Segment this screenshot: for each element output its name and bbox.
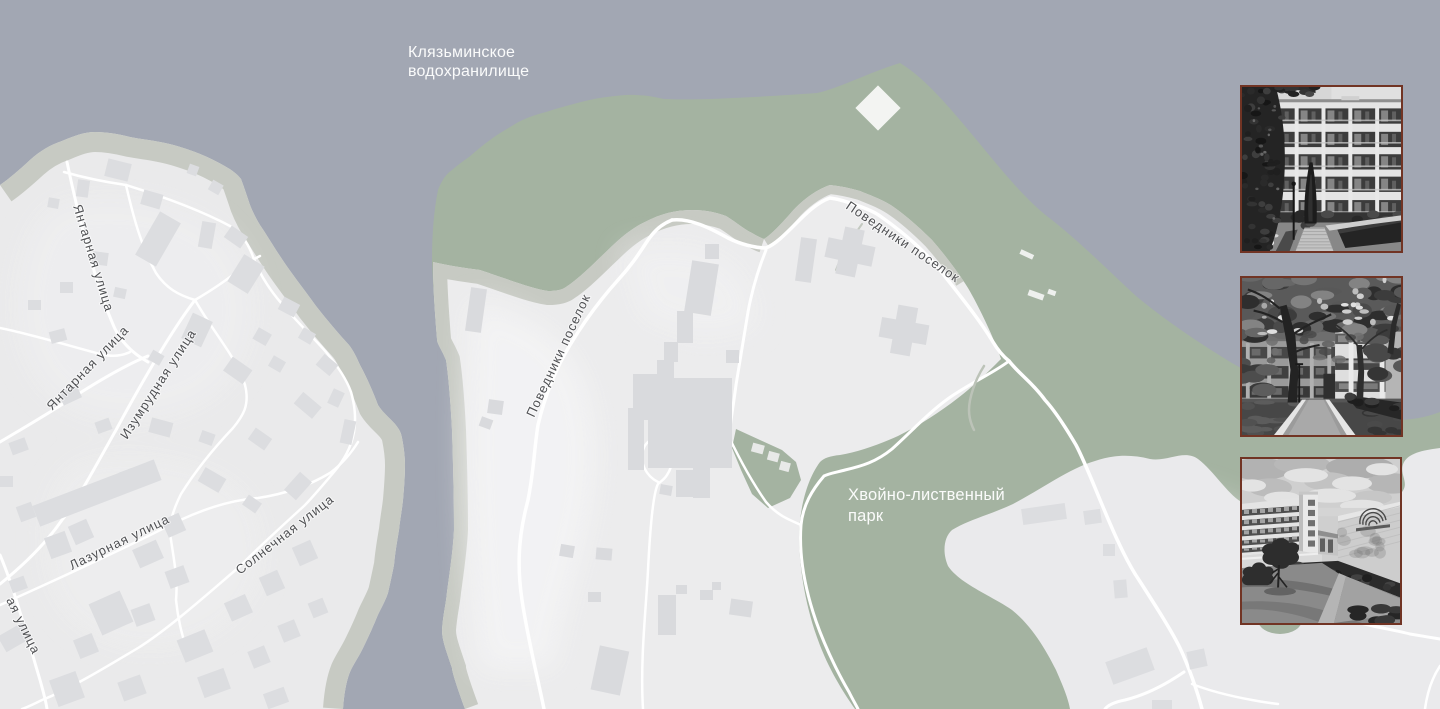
svg-text:парк: парк: [848, 507, 884, 525]
svg-text:Хвойно-лиственный: Хвойно-лиственный: [848, 486, 1005, 504]
svg-text:Клязьминское: Клязьминское: [408, 44, 515, 61]
svg-text:водохранилище: водохранилище: [408, 63, 529, 80]
